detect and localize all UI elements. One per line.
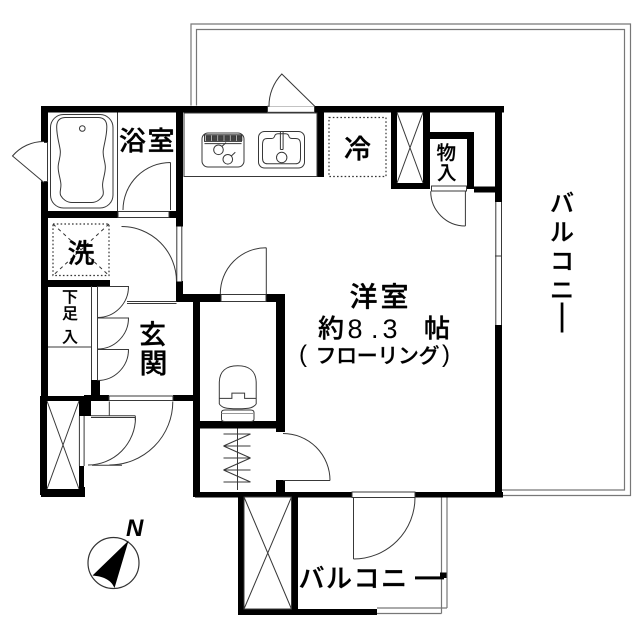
svg-text:3: 3 bbox=[383, 314, 398, 344]
svg-text:): ) bbox=[442, 341, 450, 368]
svg-text:.: . bbox=[371, 314, 379, 344]
svg-text:N: N bbox=[126, 515, 144, 542]
svg-text:(: ( bbox=[299, 341, 307, 368]
svg-text:8: 8 bbox=[348, 314, 363, 344]
